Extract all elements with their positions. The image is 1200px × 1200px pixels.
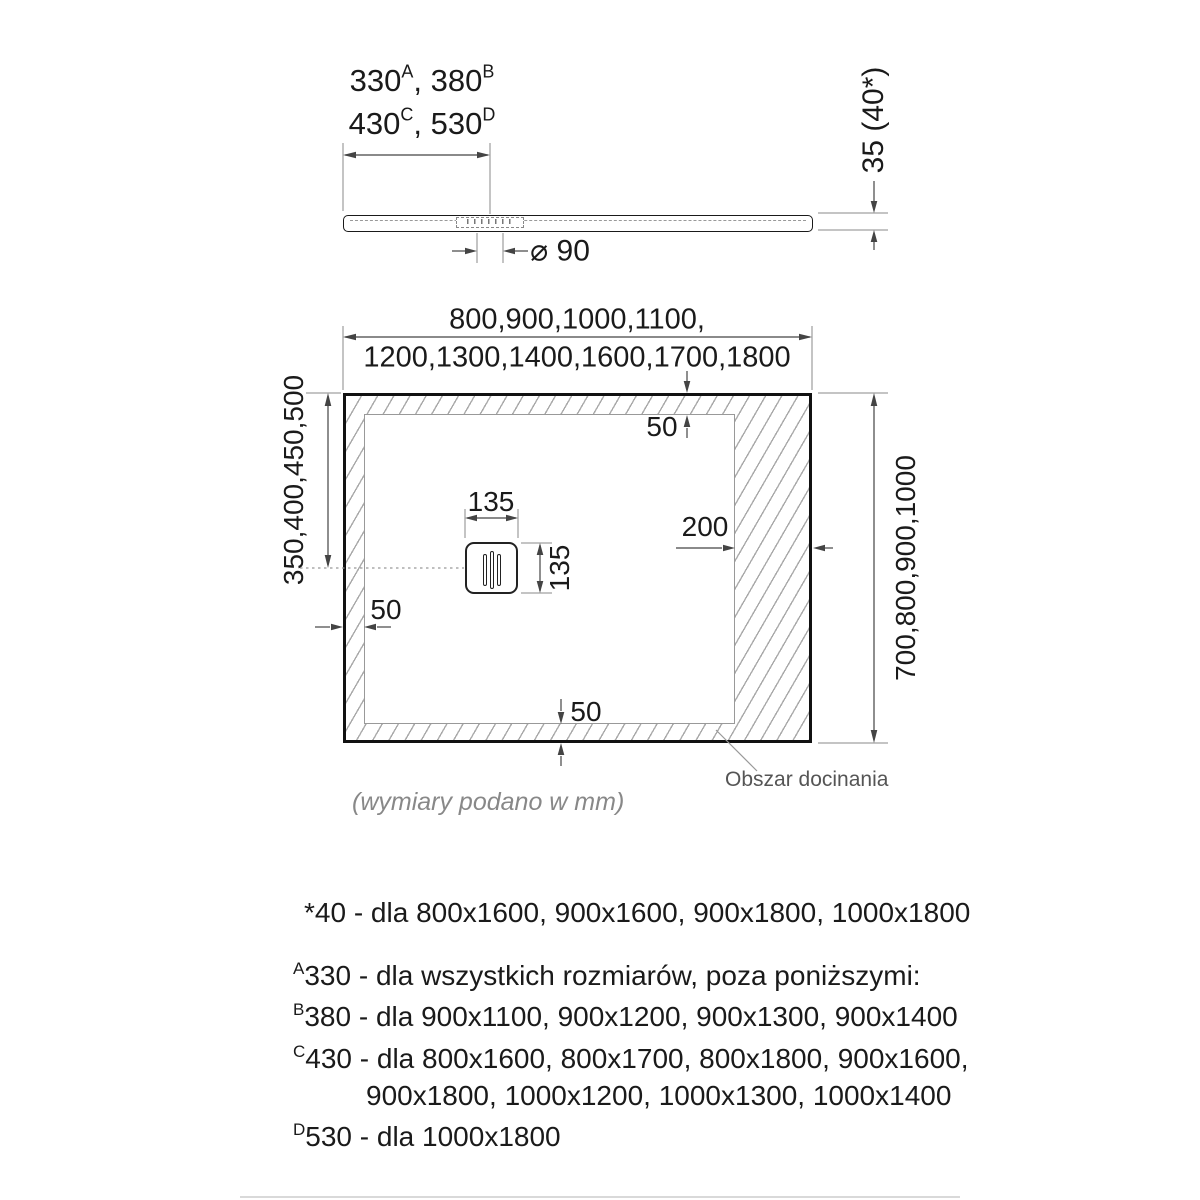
bottom-rule [240,1196,960,1198]
trim-area-label: Obszar docinania [725,768,888,792]
drain-slot [490,551,494,589]
note-40: *40 - dla 800x1600, 900x1600, 900x1800, … [304,897,970,929]
tray-surface-dashed-line [350,220,806,221]
overall-length-label: 700,800,900,1000 [890,455,922,681]
drain-grate [465,542,518,594]
overall-depth-label: 350,400,450,500 [278,375,310,585]
side-length-label: 330A, 380B 430C, 530D [349,56,496,143]
overall-width-label-row1: 800,900,1000,1100, [449,304,705,337]
note-430-continued: 900x1800, 1000x1200, 1000x1300, 1000x140… [366,1080,951,1112]
edge-left-label: 50 [370,594,401,626]
edge-bottom-label: 50 [570,696,601,728]
drain-slot [483,554,487,586]
note-380: B380 - dla 900x1100, 900x1200, 900x1300,… [293,1001,958,1033]
drain-side-profile [456,217,524,228]
overall-width-label-row2: 1200,1300,1400,1600,1700,1800 [363,342,790,375]
note-330: A330 - dla wszystkich rozmiarów, poza po… [293,960,921,992]
thickness-label: 35 (40*) [857,67,891,174]
trim-width-label: 200 [682,511,729,543]
tray-side-profile [343,215,813,232]
drain-diameter-label: ⌀ 90 [530,234,590,269]
drain-grate-ticks [467,219,513,224]
note-430: C430 - dla 800x1600, 800x1700, 800x1800,… [293,1043,969,1075]
edge-top-label: 50 [646,411,677,443]
drain-slot [497,554,501,586]
drain-height-label: 135 [544,545,576,592]
side-length-line2: 430C, 530D [349,99,496,142]
technical-drawing-page: { "side_view": { "length": { "l1v1": "33… [0,0,1200,1200]
drain-width-label: 135 [468,486,515,518]
side-length-line1: 330A, 380B [349,56,496,99]
note-530: D530 - dla 1000x1800 [293,1121,561,1153]
units-note: (wymiary podano w mm) [352,788,624,817]
